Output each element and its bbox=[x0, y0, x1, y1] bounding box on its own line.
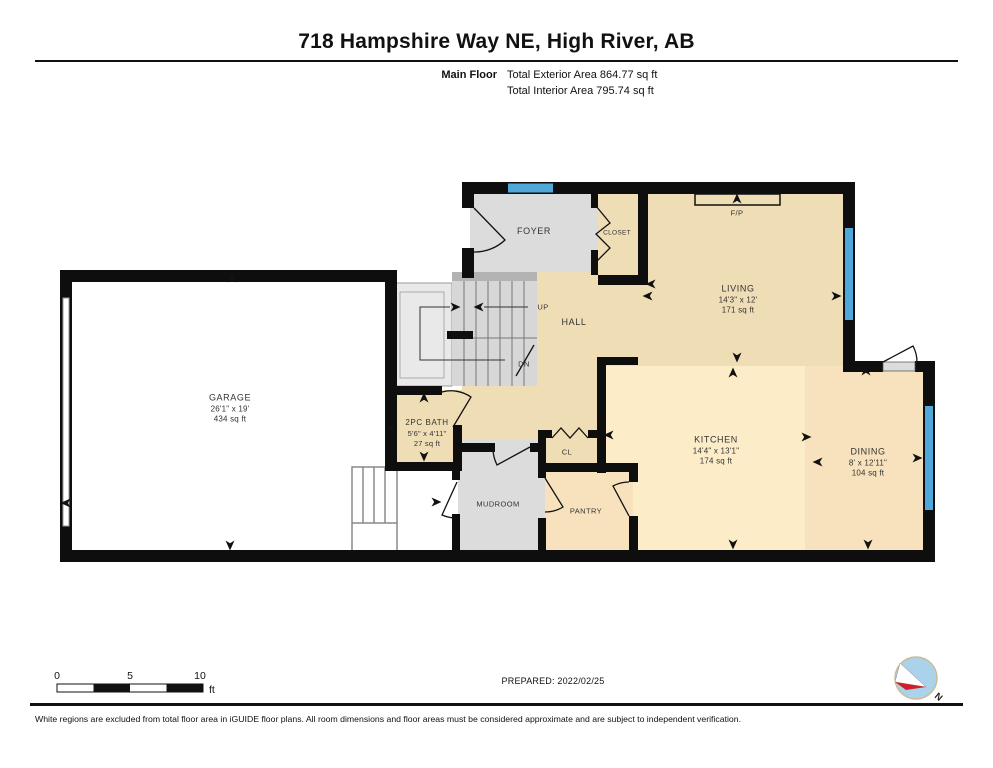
scale-tick-5: 5 bbox=[127, 670, 133, 682]
window-foyer bbox=[508, 184, 553, 193]
floorplan-page: 718 Hampshire Way NE, High River, AB Mai… bbox=[0, 0, 993, 768]
label-mudroom: MUDROOM bbox=[476, 500, 519, 509]
label-dining: DINING 8' x 12'11" 104 sq ft bbox=[849, 447, 887, 478]
garage-steps bbox=[352, 467, 397, 552]
compass-icon: N bbox=[895, 657, 945, 704]
footer-disclaimer: White regions are excluded from total fl… bbox=[35, 714, 741, 724]
label-bath: 2PC BATH 5'6" x 4'11" 27 sq ft bbox=[405, 418, 448, 448]
compass-north-label: N bbox=[932, 691, 944, 704]
label-hall: HALL bbox=[562, 317, 587, 327]
label-garage: GARAGE 26'1" x 19' 434 sq ft bbox=[209, 393, 251, 424]
label-fireplace: F/P bbox=[731, 209, 744, 218]
window-dining bbox=[925, 406, 933, 510]
label-cl: CL bbox=[562, 448, 572, 457]
label-kitchen: KITCHEN 14'4" x 13'1" 174 sq ft bbox=[693, 435, 739, 466]
label-foyer: FOYER bbox=[517, 226, 551, 236]
footer-divider bbox=[30, 703, 963, 706]
scale-tick-10: 10 bbox=[194, 670, 206, 682]
label-living: LIVING 14'3" x 12' 171 sq ft bbox=[719, 284, 758, 315]
back-door bbox=[883, 346, 917, 362]
scale-unit: ft bbox=[209, 684, 215, 696]
prepared-date: PREPARED: 2022/02/25 bbox=[502, 676, 605, 686]
label-closet: CLOSET bbox=[603, 230, 631, 237]
label-stairs-down: DN bbox=[518, 360, 530, 369]
floorplan-drawing: 0 5 10 ft N bbox=[0, 0, 993, 768]
stairs-group bbox=[393, 272, 537, 386]
back-door-slab bbox=[883, 362, 915, 371]
label-pantry: PANTRY bbox=[570, 507, 602, 516]
label-stairs-up: UP bbox=[537, 303, 548, 312]
window-living bbox=[845, 228, 853, 320]
garage-door bbox=[63, 298, 69, 526]
scale-bar: 0 5 10 ft bbox=[54, 670, 215, 696]
scale-tick-0: 0 bbox=[54, 670, 60, 682]
